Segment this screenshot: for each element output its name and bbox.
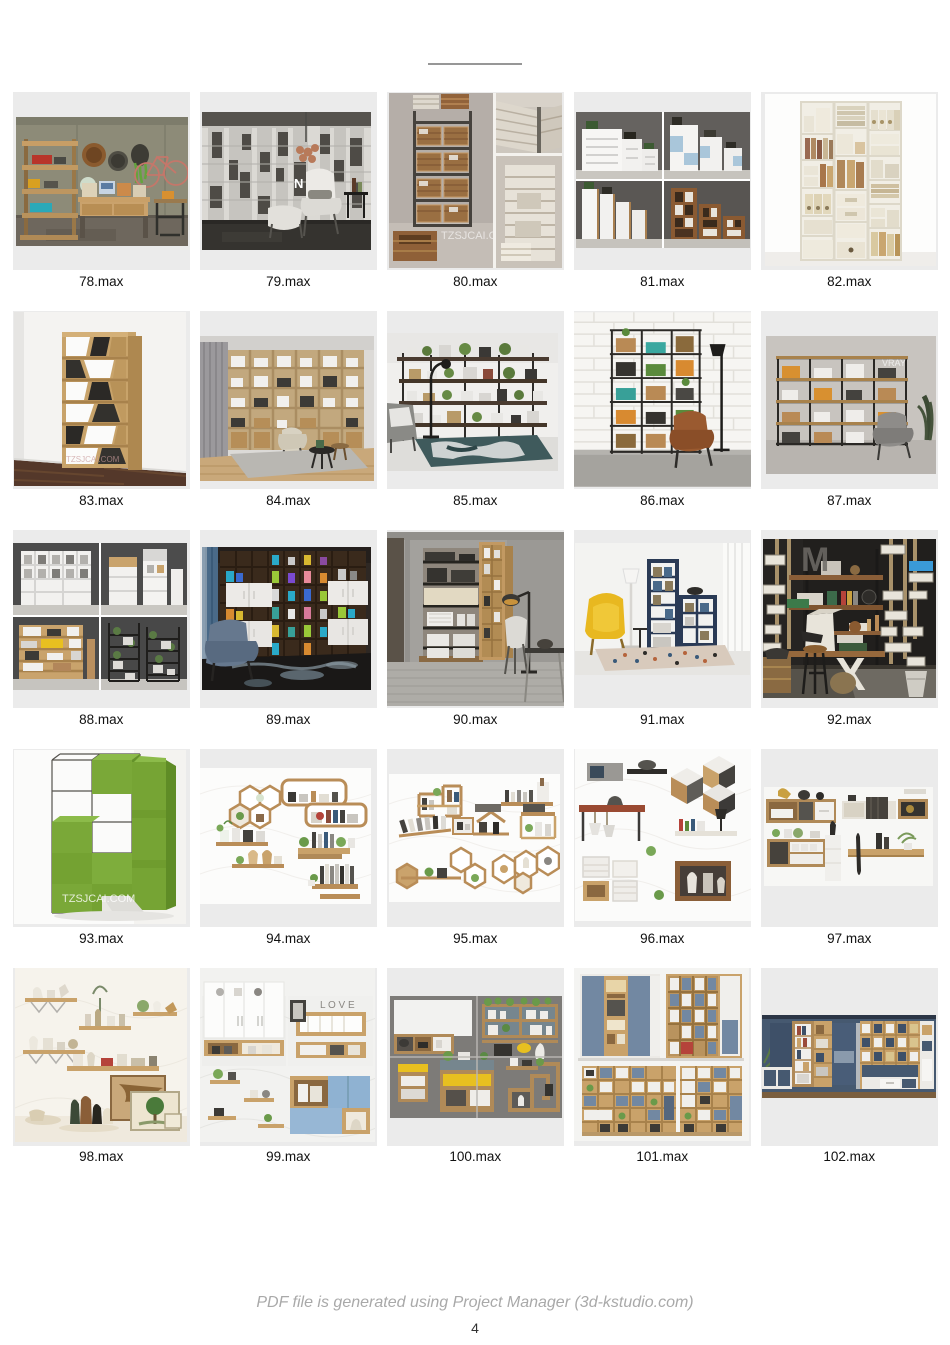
svg-text:L O V E: L O V E [320, 1000, 355, 1011]
svg-text:TZSJCAI.COM: TZSJCAI.COM [66, 455, 120, 464]
svg-text:TZSJCAI.COM: TZSJCAI.COM [62, 893, 135, 905]
svg-text:VRAY: VRAY [882, 358, 906, 368]
svg-text:N: N [294, 176, 303, 191]
svg-text:M: M [801, 541, 829, 579]
